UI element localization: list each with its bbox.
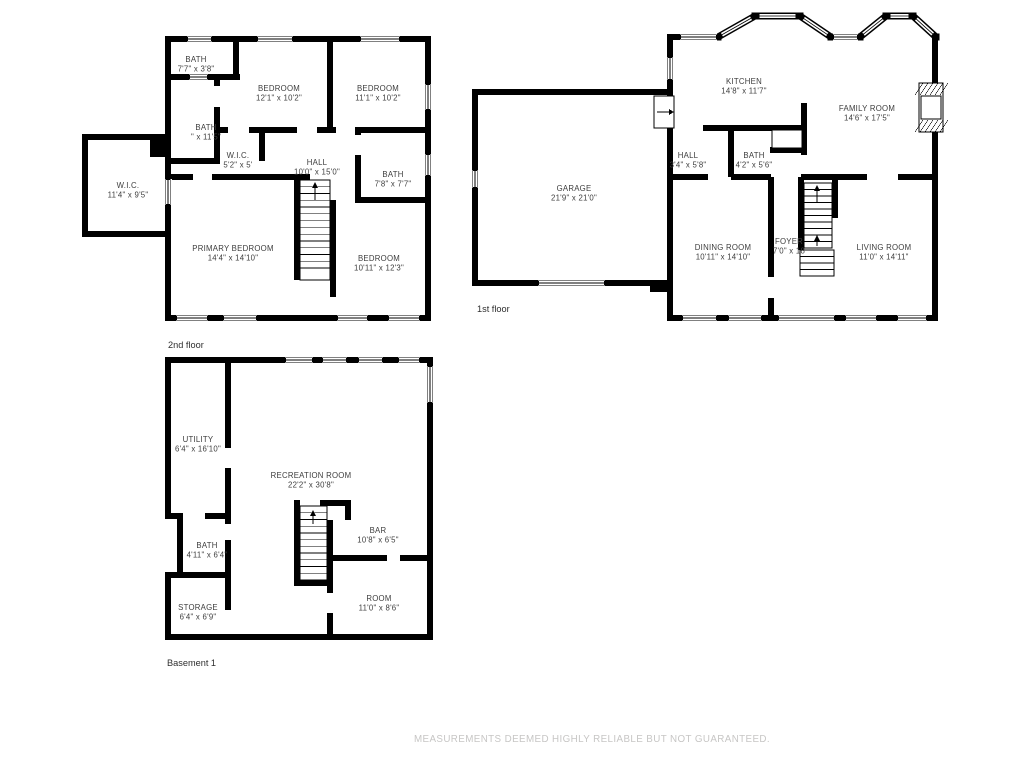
room-name-label: BEDROOM <box>358 254 400 263</box>
room-dims-label: 10'8" x 6'5" <box>357 536 398 545</box>
room-name-label: BATH <box>196 541 217 550</box>
room-dims-label: 7'7" x 3'8" <box>178 65 215 74</box>
stairs-icon <box>800 183 834 276</box>
room-dims-label: 5'2" x 5' <box>223 161 252 170</box>
room-name-label: BATH <box>382 170 403 179</box>
basement-walls <box>165 357 433 640</box>
stairs-icon <box>300 506 327 580</box>
room-dims-label: 6'4" x 16'10" <box>175 445 221 454</box>
bay-window-icon <box>715 13 940 41</box>
room-dims-label: 21'9" x 21'0" <box>551 194 597 203</box>
room-name-label: HALL <box>307 158 328 167</box>
basement-windows <box>285 356 434 403</box>
room-dims-label: 4'2" x 5'6" <box>736 161 773 170</box>
room-name-label: PRIMARY BEDROOM <box>192 244 273 253</box>
room-dims-label: 6'4" x 6'9" <box>180 613 217 622</box>
room-dims-label: " x 11'5" <box>191 133 221 142</box>
room-dims-label: 10'11" x 14'10" <box>696 253 751 262</box>
room-dims-label: 11'1" x 10'2" <box>355 94 400 103</box>
room-dims-label: 14'6" x 17'5" <box>844 114 890 123</box>
room-dims-label: 22'2" x 30'8" <box>288 481 334 490</box>
stairs-icon <box>300 180 330 280</box>
floor-label: 1st floor <box>477 304 510 314</box>
room-name-label: W.I.C. <box>117 181 140 190</box>
room-dims-label: 14'8" x 11'7" <box>721 87 766 96</box>
first-floor-walls <box>472 34 938 321</box>
room-dims-label: 14'4" x 14'10" <box>208 254 259 263</box>
basement-plan <box>165 356 434 640</box>
room-name-label: RECREATION ROOM <box>271 471 352 480</box>
room-dims-label: 11'0" x 8'6" <box>359 604 400 613</box>
room-name-label: FOYER <box>775 237 803 246</box>
floor-label: Basement 1 <box>167 658 216 668</box>
room-name-label: UTILITY <box>183 435 214 444</box>
room-name-label: GARAGE <box>557 184 592 193</box>
disclaimer-text: MEASUREMENTS DEEMED HIGHLY RELIABLE BUT … <box>412 734 772 745</box>
basement-labels: UTILITY6'4" x 16'10"RECREATION ROOM22'2"… <box>167 435 399 668</box>
room-name-label: HALL <box>678 151 699 160</box>
page: { "colors": { "wall": "#000000", "room_l… <box>0 0 1024 768</box>
room-name-label: BATH <box>743 151 764 160</box>
room-name-label: ROOM <box>366 594 391 603</box>
room-dims-label: 10'0" x 15'0" <box>294 168 340 177</box>
room-dims-label: 11'4" x 9'5" <box>108 191 149 200</box>
room-dims-label: 4'11" x 6'4" <box>187 551 228 560</box>
room-dims-label: 12'1" x 10'2" <box>256 94 302 103</box>
fireplace-icon <box>915 83 948 132</box>
room-name-label: BATH <box>185 55 206 64</box>
first-floor-labels: KITCHEN14'8" x 11'7"FAMILY ROOM14'6" x 1… <box>477 77 911 314</box>
room-name-label: LIVING ROOM <box>857 243 912 252</box>
bathtub-icon <box>772 130 802 148</box>
room-name-label: BEDROOM <box>258 84 300 93</box>
room-name-label: BEDROOM <box>357 84 399 93</box>
first-floor-plan <box>471 13 948 323</box>
room-name-label: FAMILY ROOM <box>839 104 895 113</box>
room-dims-label: 10'11" x 12'3" <box>354 264 404 273</box>
room-name-label: BAR <box>370 526 387 535</box>
floorplan-canvas: BATH7'7" x 3'8"BEDROOM12'1" x 10'2"BEDRO… <box>0 0 1024 768</box>
room-dims-label: 3'4" x 5'8" <box>670 161 707 170</box>
room-name-label: W.I.C. <box>227 151 250 160</box>
room-dims-label: 11'0" x 14'11" <box>859 253 908 262</box>
room-name-label: DINING ROOM <box>695 243 751 252</box>
room-name-label: STORAGE <box>178 603 218 612</box>
door-swing-icon <box>654 96 674 128</box>
second-floor-plan <box>82 35 432 322</box>
floor-label: 2nd floor <box>168 340 204 350</box>
second-floor-walls <box>82 36 431 321</box>
room-name-label: KITCHEN <box>726 77 762 86</box>
room-name-label: BATH <box>195 123 216 132</box>
room-dims-label: 7'8" x 7'7" <box>375 180 412 189</box>
room-dims-label: 7'0" x 18 <box>773 247 805 256</box>
